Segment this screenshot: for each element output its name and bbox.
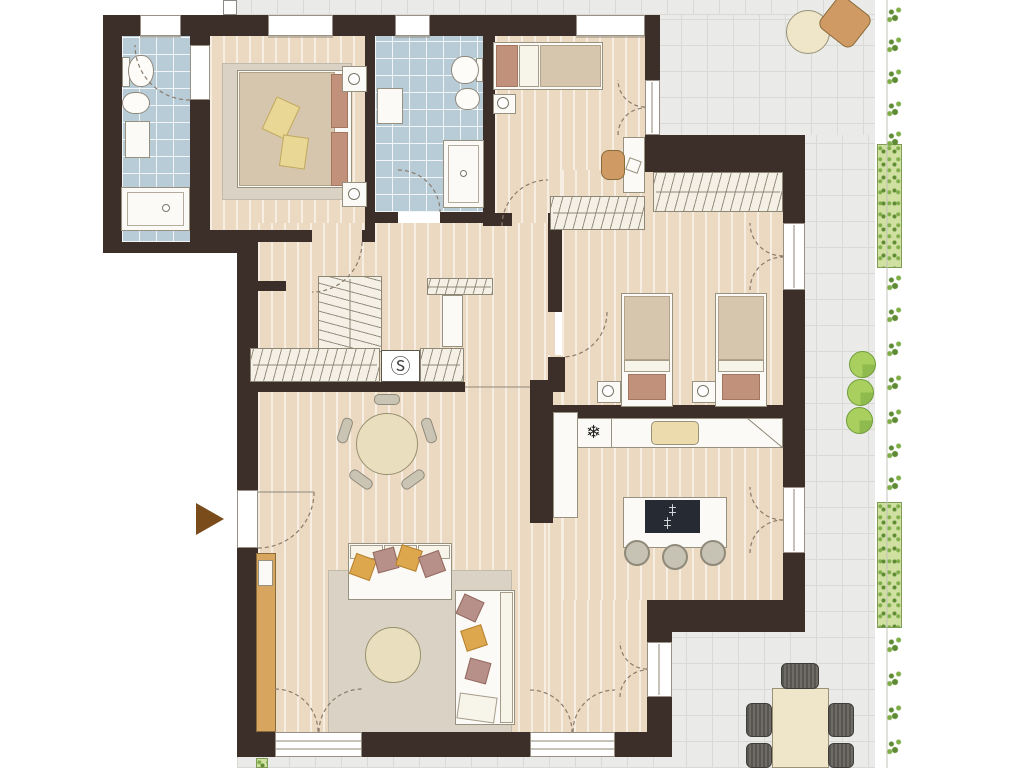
kitchen-sink [651,421,699,445]
dining-chair-1[interactable] [374,394,400,405]
stool-1[interactable] [624,540,650,566]
closet-column [442,295,463,347]
electrical-panel: Ⓢ [381,350,420,382]
lamp-bedroom2 [497,97,509,109]
planter-box-2 [877,502,902,628]
lamp-twin-a [602,385,614,397]
hedge-shrub [886,440,904,460]
lamp-twin-b [697,385,709,397]
wall-left-upper [103,15,122,253]
desk-chair [601,150,625,180]
hedge-shrub [886,66,904,86]
wall-right-c [783,553,805,600]
cooktop [645,500,700,533]
terrace-chair-left-1[interactable] [746,703,772,737]
single-bed-duvet [540,45,601,87]
bush-2 [847,379,874,406]
hedge-shrub [886,736,904,756]
wall-dining-right-b [647,697,672,757]
shower-drain [460,170,467,177]
sofa-2-back [500,592,513,723]
hedge-shrub [886,272,904,292]
coffee-table [365,627,421,683]
window-bath1 [140,15,181,36]
hedge-shrub [886,98,904,118]
wall-bath1-bottom [103,242,250,253]
french-window-living-2 [530,732,615,757]
terrace-chair-right-2[interactable] [828,743,854,768]
wall-left-main-b [237,548,258,757]
hedge-shrub [886,304,904,324]
planter-small [256,758,268,768]
window-bedroom2 [576,15,645,36]
closet-rail [427,278,493,295]
wall-bath1-bed1-a [190,36,210,45]
bathtub-drain [162,204,170,212]
wardrobe-bedroom2 [550,196,645,230]
master-cushion-2 [279,134,309,169]
bidet-bath2 [455,88,480,110]
stool-2[interactable] [662,544,688,570]
hedge-shrub [886,634,904,654]
bush-3 [846,407,873,434]
fridge: ❄ [575,418,612,448]
french-window-twin [783,223,805,290]
wall-bed1-bottom-b [362,230,375,242]
hedge-shrub [886,472,904,492]
lamp-master-1 [348,73,360,85]
bathtub-inner [127,192,184,226]
twin-bed-b-duvet [718,296,764,360]
sink-bath2 [377,88,403,124]
master-pillow-2 [331,132,348,186]
french-door-kitchen [783,487,805,553]
entry-door-gap[interactable] [237,490,258,548]
single-bed-fold [519,45,539,87]
hedge-shrub [886,4,904,24]
lamp-master-2 [348,188,360,200]
terrace-bottom-strip [237,757,672,768]
planter-box-1 [877,144,902,268]
window-master [268,15,333,36]
wall-bottom-b [362,732,530,757]
terrace-chair-right-1[interactable] [828,703,854,737]
french-door-dining [647,642,672,697]
wardrobe-twin [653,172,783,212]
entry-arrow [196,503,224,535]
toilet-bath2 [451,56,479,84]
wall-kitchen-bottom [647,600,805,632]
wall-bath1-bed1-b [190,100,210,242]
wall-bottom-a [237,732,275,757]
wall-right-wing-top [645,135,805,172]
french-door-bedroom2 [645,80,660,135]
hedge-shrub [886,34,904,54]
wall-bedroom2-right [645,36,660,80]
wardrobe-walkin [318,276,382,352]
window-bath2 [395,15,430,36]
hedge-shrub [886,338,904,358]
french-window-living-1 [275,732,362,757]
hedge-shrub [886,372,904,392]
door-gap-bath1 [190,45,210,100]
terrace-strip-top [225,0,875,15]
wall-corridor-bottom [250,382,465,392]
wall-dining-right-a [647,632,672,642]
wall-bath2-bottom-a [375,212,398,223]
sink-bath1 [125,121,150,158]
kitchen-tall-cabinet [553,412,578,518]
terrace-chair-top[interactable] [781,663,819,689]
toilet-bath1 [128,55,154,87]
twin-bed-b-pillow [722,374,760,400]
sofa-2-cushion [456,692,497,723]
twin-bed-a-duvet [624,296,670,360]
wall-bed2-bottom [483,213,512,226]
terrace-dining-table [772,688,829,768]
bush-1 [849,351,876,378]
cabinet-item [258,560,273,586]
dining-table [356,413,418,475]
hedge-shrub [886,668,904,688]
twin-bed-b-fold [718,360,764,372]
bidet-bath1 [122,92,150,114]
hedge-shrub [886,702,904,722]
vent-box [223,0,237,15]
wardrobe-hall-right [420,348,464,382]
stool-3[interactable] [700,540,726,566]
twin-bed-a-pillow [628,374,666,400]
floor-plan: Ⓢ❄ [0,0,1024,768]
hedge-shrub [886,128,904,148]
radiator [258,281,286,291]
wall-bed1-bottom-a [210,230,312,242]
terrace-chair-left-2[interactable] [746,743,772,768]
wall-kitchen-left [530,380,553,523]
single-bed-pillow [496,45,518,87]
hedge-shrub [886,406,904,426]
wall-right-b [783,290,805,487]
twin-bed-a-fold [624,360,670,372]
wardrobe-hall-left [250,348,380,382]
